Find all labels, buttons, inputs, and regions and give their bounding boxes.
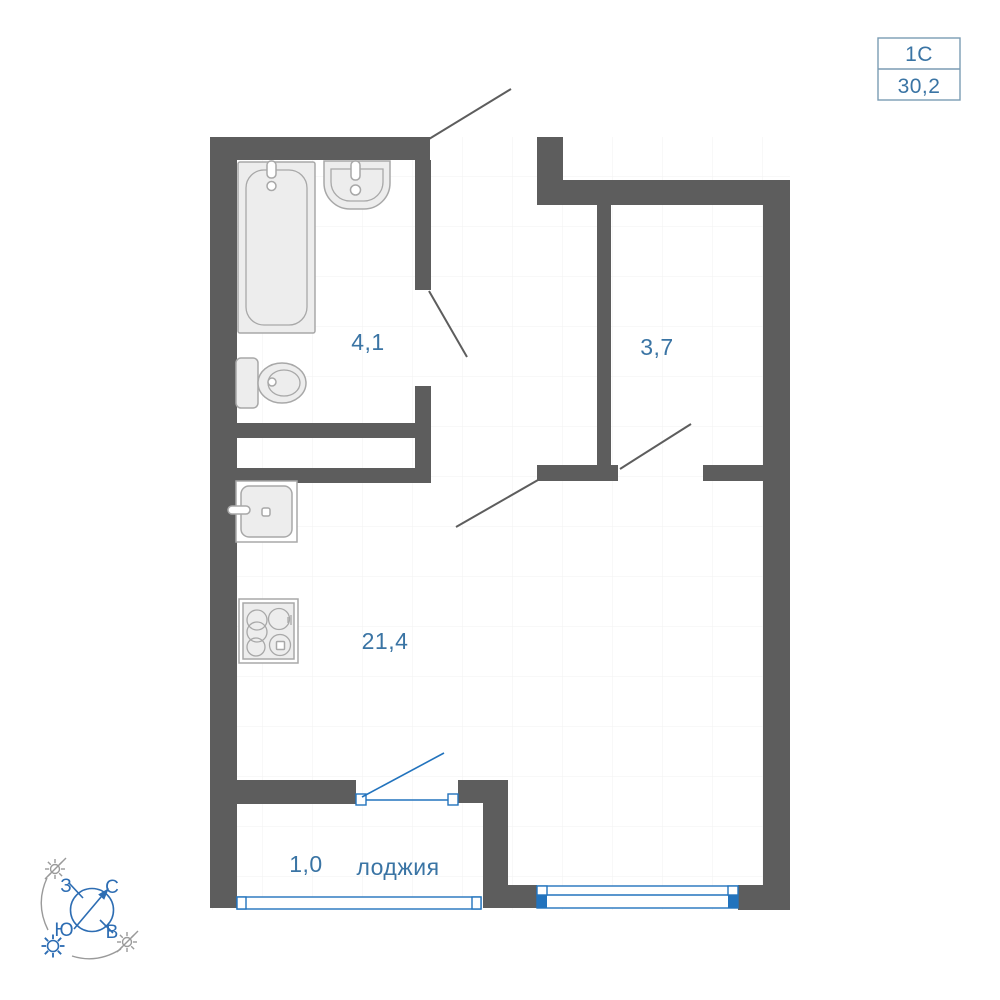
compass-label-east: В: [106, 922, 119, 943]
floor-plan: 4,1 3,7 21,4 1,0 лоджия 1С 30,2 З С Ю В: [0, 0, 1000, 1000]
sun-path-arc-south: [72, 949, 121, 959]
entrance-door-swing: [429, 89, 511, 139]
compass-label-west: З: [60, 876, 71, 897]
bath-sink-icon: [324, 161, 390, 209]
compass-rose: З С Ю В: [41, 858, 138, 959]
room-area-bathroom: 4,1: [351, 329, 384, 355]
loggia-window: [237, 897, 481, 909]
plan-total-area: 30,2: [898, 75, 941, 98]
sun-path-arc-west: [41, 878, 48, 930]
main-window: [537, 886, 738, 908]
room-area-hallway: 3,7: [640, 334, 673, 360]
plan-info-box: 1С 30,2: [878, 38, 960, 100]
sun-icon-southwest: [42, 935, 65, 958]
room-area-loggia: 1,0: [289, 851, 322, 877]
kitchen-sink-icon: [228, 481, 297, 542]
bathtub-icon: [238, 161, 315, 333]
room-name-loggia: лоджия: [356, 854, 439, 880]
compass-label-north: С: [105, 877, 119, 898]
compass-label-south: Ю: [54, 920, 73, 941]
plan-code: 1С: [905, 43, 933, 66]
floor-plan-page: 4,1 3,7 21,4 1,0 лоджия 1С 30,2 З С Ю В: [0, 0, 1000, 1000]
room-area-living-kitchen: 21,4: [362, 628, 409, 654]
stove-icon: [239, 599, 298, 663]
